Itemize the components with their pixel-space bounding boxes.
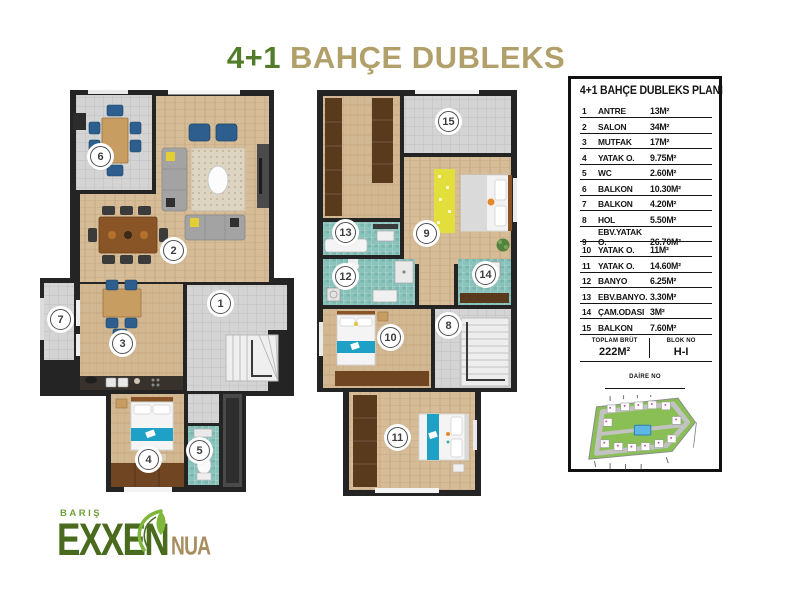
legend-row-area: 5.50M² (650, 215, 712, 225)
legend-row-area: 3M² (650, 307, 712, 317)
legend-row-no: 8 (580, 215, 598, 225)
stairs (226, 335, 278, 381)
legend-row-no: 11 (580, 261, 598, 271)
page-title: 4+1BAHÇE DUBLEKS (0, 40, 792, 76)
room-badge-9: 9 (416, 223, 437, 244)
blok-no-value: H-I (650, 346, 712, 358)
brand-logo: BARIŞ EXXEN NUA (20, 504, 245, 568)
legend-row: 3MUTFAK17M² (580, 134, 712, 149)
legend-row-no: 15 (580, 323, 598, 333)
legend-row-name: BALKON (598, 184, 650, 194)
ground-floor-plan: 1 2 3 4 5 6 7 (40, 88, 305, 493)
flyer-page: 4+1BAHÇE DUBLEKS (0, 0, 800, 608)
legend-row: 1ANTRE13M² (580, 103, 712, 118)
legend-header: 4+1 BAHÇE DUBLEKS PLANI (580, 83, 710, 97)
toplam-brut-cell: TOPLAM BRÜT 222M² (580, 338, 649, 358)
legend-row-name: ÇAM.ODASI (598, 307, 650, 317)
legend-row-name: BALKON (598, 199, 650, 209)
legend-row-area: 2.60M² (650, 168, 712, 178)
legend-row-area: 7.60M² (650, 323, 712, 333)
legend-row-no: 1 (580, 106, 598, 116)
room-badge-6: 6 (90, 146, 111, 167)
legend-row-area: 4.20M² (650, 199, 712, 209)
legend-row-area: 9.75M² (650, 153, 712, 163)
legend-row-no: 12 (580, 276, 598, 286)
room-badge-15: 15 (438, 111, 459, 132)
legend-row-area: 6.25M² (650, 276, 712, 286)
legend-row-no: 7 (580, 199, 598, 209)
legend-row-name: WC (598, 168, 650, 178)
toplam-brut-value: 222M² (580, 346, 649, 358)
ground-floor-plan-drawing (40, 88, 305, 493)
legend-row-area: 10.30M² (650, 184, 712, 194)
room-badge-7: 7 (50, 309, 71, 330)
legend-row-no: 6 (580, 184, 598, 194)
legend-row-area: 11M² (650, 245, 712, 255)
legend-row: 9EBV.YATAK O.26.70M² (580, 227, 712, 242)
upper-floor-plan-drawing (315, 90, 540, 500)
legend-row: 5WC2.60M² (580, 165, 712, 180)
toplam-brut-label: TOPLAM BRÜT (580, 338, 649, 344)
legend-row-name: EBV.BANYO. (598, 292, 650, 302)
room-badge-8: 8 (438, 315, 459, 336)
legend-row-name: BALKON (598, 323, 650, 333)
room-badge-4: 4 (138, 449, 159, 470)
legend-row-no: 14 (580, 307, 598, 317)
legend-row-name: BANYO (598, 276, 650, 286)
room-badge-12: 12 (335, 266, 356, 287)
room-badge-11: 11 (387, 427, 408, 448)
legend-row: 2SALON34M² (580, 118, 712, 133)
legend-row: 13EBV.BANYO.3.30M² (580, 288, 712, 303)
legend-row-no: 4 (580, 153, 598, 163)
legend-row-area: 14.60M² (650, 261, 712, 271)
daire-no-blank-line (605, 388, 685, 389)
legend-panel: 4+1 BAHÇE DUBLEKS PLANI 1ANTRE13M²2SALON… (568, 76, 722, 472)
legend-row-no: 5 (580, 168, 598, 178)
legend-row: 8HOL5.50M² (580, 211, 712, 226)
legend-row: 7BALKON4.20M² (580, 196, 712, 211)
leaf-icon (134, 508, 170, 554)
blok-no-cell: BLOK NO H-I (649, 338, 712, 358)
legend-row-name: YATAK O. (598, 245, 650, 255)
blok-no-label: BLOK NO (650, 338, 712, 344)
legend-row-name: YATAK O. (598, 261, 650, 271)
room-badge-13: 13 (335, 222, 356, 243)
logo-nua-text: NUA (171, 534, 210, 560)
legend-row-name: MUTFAK (598, 137, 650, 147)
upper-floor-plan: 8 9 10 11 12 13 14 15 (315, 90, 540, 500)
legend-row-name: SALON (598, 122, 650, 132)
legend-row: 11YATAK O.14.60M² (580, 257, 712, 272)
legend-row-area: 17M² (650, 137, 712, 147)
legend-row-area: 3.30M² (650, 292, 712, 302)
title-prefix: 4+1 (227, 40, 281, 75)
legend-rows: 1ANTRE13M²2SALON34M²3MUTFAK17M²4YATAK O.… (580, 103, 712, 335)
room-badge-3: 3 (112, 333, 133, 354)
legend-row-name: YATAK O. (598, 153, 650, 163)
legend-row-no: 13 (580, 292, 598, 302)
legend-row: 15BALKON7.60M² (580, 319, 712, 334)
upper-stairs (461, 318, 509, 386)
legend-row: 12BANYO6.25M² (580, 273, 712, 288)
legend-row-no: 2 (580, 122, 598, 132)
legend-row-no: 10 (580, 245, 598, 255)
legend-row-area: 13M² (650, 106, 712, 116)
title-rest: BAHÇE DUBLEKS (290, 40, 565, 75)
legend-row-no: 3 (580, 137, 598, 147)
legend-row: 14ÇAM.ODASI3M² (580, 304, 712, 319)
legend-totals: TOPLAM BRÜT 222M² BLOK NO H-I (580, 336, 712, 362)
room-badge-10: 10 (380, 327, 401, 348)
daire-no-label: DAİRE NO (571, 374, 719, 380)
site-plan-map (581, 395, 709, 473)
legend-row-area: 34M² (650, 122, 712, 132)
site-pool (634, 425, 650, 435)
room-badge-2: 2 (163, 240, 184, 261)
legend-row: 4YATAK O.9.75M² (580, 149, 712, 164)
legend-row-name: HOL (598, 215, 650, 225)
legend-row-name: ANTRE (598, 106, 650, 116)
room-badge-1: 1 (210, 293, 231, 314)
legend-row-name: EBV.YATAK O. (598, 227, 650, 247)
room-badge-5: 5 (189, 440, 210, 461)
legend-row: 6BALKON10.30M² (580, 180, 712, 195)
room-badge-14: 14 (475, 264, 496, 285)
